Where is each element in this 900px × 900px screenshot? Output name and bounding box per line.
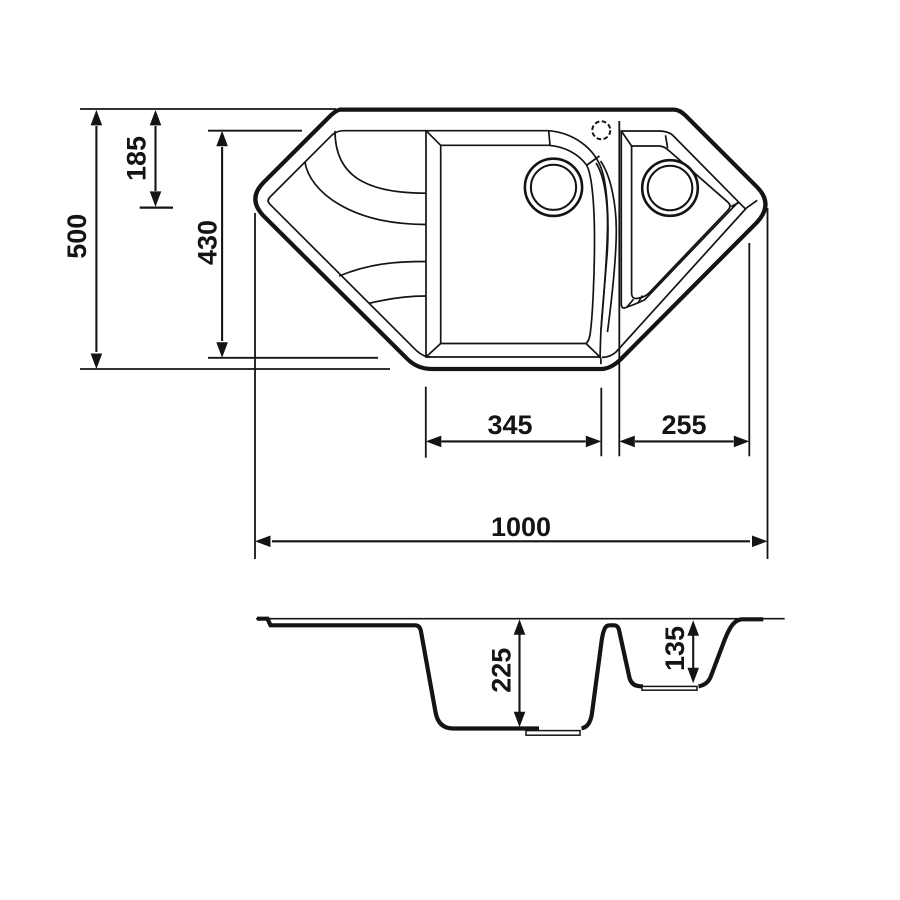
svg-text:135: 135 [660,626,690,671]
svg-text:1000: 1000 [491,512,551,542]
svg-text:225: 225 [487,648,517,693]
svg-text:255: 255 [662,410,707,440]
svg-text:430: 430 [193,220,223,265]
svg-text:345: 345 [488,410,533,440]
svg-text:185: 185 [122,136,152,181]
svg-text:500: 500 [62,214,92,259]
